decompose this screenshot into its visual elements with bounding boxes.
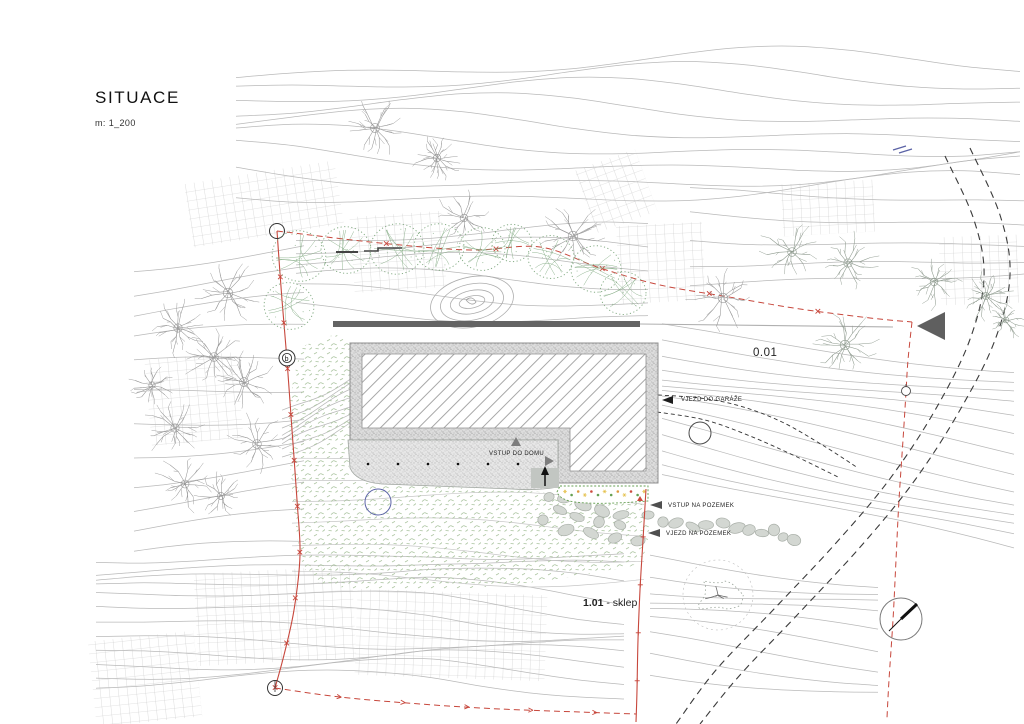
arrow-left-icon xyxy=(650,501,662,509)
site-plan: b SITUACE m: 1_200 VJEZD DO GARÁŽE VSTUP… xyxy=(0,0,1024,724)
flower-bed xyxy=(557,486,648,503)
circle-marker-icon xyxy=(689,422,711,444)
cellar-number: 1.01 xyxy=(583,597,603,609)
site-entrance-arrow-icon xyxy=(917,312,945,340)
retaining-wall xyxy=(333,321,640,327)
terrace xyxy=(348,440,558,490)
bare-tree xyxy=(413,137,461,181)
scale-label: m: 1_200 xyxy=(95,118,136,128)
bare-tree xyxy=(813,314,880,370)
site-entry-vehicle-label: VJEZD NA POZEMEK xyxy=(666,531,731,537)
parcel-number-label: 0.01 xyxy=(753,347,777,359)
bush xyxy=(683,560,753,630)
green-tree xyxy=(570,245,622,293)
driveway-dashed xyxy=(657,395,858,478)
arrow-up-icon xyxy=(511,437,521,446)
site-plan-canvas: b xyxy=(0,0,1024,724)
bare-tree xyxy=(195,264,260,321)
house-entry-label: VSTUP DO DOMU xyxy=(489,451,544,457)
bare-tree xyxy=(825,231,879,289)
page-title: SITUACE xyxy=(95,88,180,108)
small-marker-icon xyxy=(902,387,911,396)
arrow-left-icon xyxy=(648,529,660,537)
arrow-right-icon xyxy=(545,456,554,466)
arrow-left-icon xyxy=(662,396,673,404)
cellar-label: 1.01 - sklep xyxy=(583,597,637,609)
survey-compass-icon xyxy=(880,598,922,640)
garage-entry-label: VJEZD DO GARÁŽE xyxy=(681,397,742,403)
green-tree xyxy=(259,277,319,335)
bare-tree xyxy=(155,458,212,513)
site-entry-foot-label: VSTUP NA POZEMEK xyxy=(668,503,734,509)
boundary-marker-letter: b xyxy=(285,356,289,363)
bare-tree xyxy=(992,300,1024,338)
building-footprint xyxy=(333,321,893,490)
cellar-suffix: - sklep xyxy=(603,597,637,609)
